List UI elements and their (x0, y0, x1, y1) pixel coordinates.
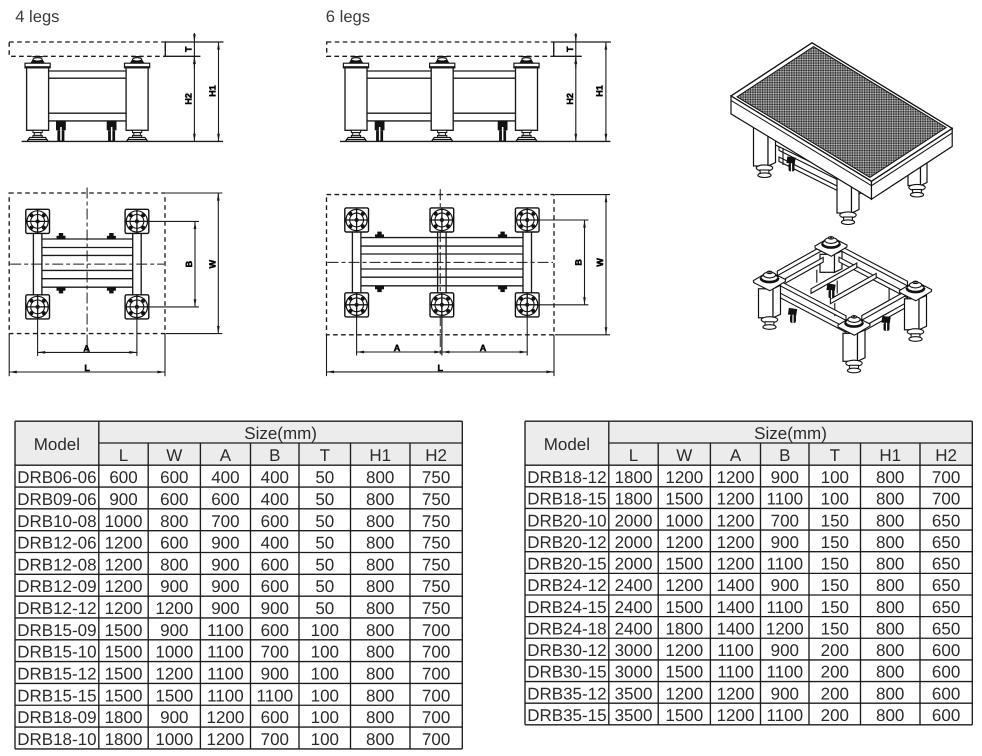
svg-text:DRB12-08: DRB12-08 (17, 555, 96, 574)
svg-text:200: 200 (821, 641, 849, 660)
svg-text:900: 900 (160, 708, 188, 727)
svg-text:L: L (629, 446, 638, 465)
svg-text:2000: 2000 (615, 533, 653, 552)
svg-text:1200: 1200 (105, 599, 143, 618)
svg-text:800: 800 (366, 708, 394, 727)
svg-text:750: 750 (422, 534, 450, 553)
svg-text:1200: 1200 (717, 468, 755, 487)
svg-text:B: B (574, 259, 584, 266)
svg-text:900: 900 (211, 555, 239, 574)
svg-text:800: 800 (876, 576, 904, 595)
svg-text:1500: 1500 (665, 555, 703, 574)
svg-text:100: 100 (821, 468, 849, 487)
svg-text:700: 700 (261, 643, 289, 662)
svg-text:750: 750 (422, 512, 450, 531)
svg-text:Size(mm): Size(mm) (244, 424, 317, 443)
svg-text:900: 900 (771, 468, 799, 487)
svg-text:900: 900 (211, 534, 239, 553)
svg-text:L: L (84, 363, 90, 373)
svg-text:DRB24-15: DRB24-15 (527, 598, 606, 617)
svg-text:50: 50 (315, 599, 334, 618)
svg-text:700: 700 (211, 512, 239, 531)
svg-text:1100: 1100 (257, 686, 294, 705)
svg-text:1400: 1400 (717, 576, 755, 595)
svg-text:1800: 1800 (615, 490, 653, 509)
svg-text:1800: 1800 (105, 708, 143, 727)
svg-text:900: 900 (261, 599, 289, 618)
svg-text:700: 700 (771, 511, 799, 530)
svg-text:1200: 1200 (665, 576, 703, 595)
svg-text:100: 100 (311, 730, 339, 749)
svg-text:900: 900 (771, 641, 799, 660)
svg-text:DRB30-15: DRB30-15 (527, 663, 606, 682)
svg-text:1100: 1100 (207, 643, 244, 662)
svg-text:600: 600 (261, 555, 289, 574)
svg-text:A: A (394, 343, 401, 353)
svg-text:T: T (565, 46, 575, 52)
svg-text:1200: 1200 (155, 665, 193, 684)
svg-text:DRB12-06: DRB12-06 (17, 534, 96, 553)
svg-text:700: 700 (422, 708, 450, 727)
svg-text:A: A (730, 446, 742, 465)
svg-text:H2: H2 (425, 446, 447, 465)
svg-text:900: 900 (109, 490, 137, 509)
svg-text:800: 800 (876, 490, 904, 509)
svg-text:2400: 2400 (615, 598, 653, 617)
svg-text:800: 800 (366, 512, 394, 531)
svg-text:900: 900 (771, 533, 799, 552)
svg-text:600: 600 (160, 534, 188, 553)
svg-text:DRB30-12: DRB30-12 (527, 641, 606, 660)
svg-text:900: 900 (771, 684, 799, 703)
svg-text:800: 800 (160, 512, 188, 531)
svg-text:900: 900 (160, 621, 188, 640)
svg-text:H2: H2 (183, 93, 193, 105)
svg-text:600: 600 (261, 708, 289, 727)
svg-text:1800: 1800 (665, 619, 703, 638)
svg-text:1200: 1200 (665, 641, 703, 660)
svg-text:200: 200 (821, 663, 849, 682)
svg-text:1200: 1200 (717, 511, 755, 530)
svg-text:900: 900 (211, 577, 239, 596)
svg-text:1100: 1100 (767, 490, 804, 509)
svg-text:A: A (480, 343, 487, 353)
svg-text:H1: H1 (879, 446, 901, 465)
svg-text:50: 50 (315, 577, 334, 596)
svg-text:Model: Model (544, 435, 590, 454)
svg-text:DRB20-10: DRB20-10 (527, 511, 606, 530)
svg-text:DRB24-18: DRB24-18 (527, 619, 606, 638)
svg-text:DRB18-10: DRB18-10 (17, 730, 96, 749)
svg-text:1200: 1200 (766, 619, 804, 638)
svg-text:1200: 1200 (105, 555, 143, 574)
svg-text:1500: 1500 (105, 621, 143, 640)
svg-text:3000: 3000 (615, 663, 653, 682)
svg-text:1200: 1200 (717, 706, 755, 725)
svg-text:1100: 1100 (207, 665, 244, 684)
svg-text:DRB20-15: DRB20-15 (527, 555, 606, 574)
svg-text:DRB18-12: DRB18-12 (527, 468, 606, 487)
svg-text:1500: 1500 (105, 665, 143, 684)
svg-text:600: 600 (932, 641, 960, 660)
svg-text:700: 700 (422, 643, 450, 662)
svg-text:100: 100 (311, 686, 339, 705)
svg-text:W: W (676, 446, 692, 465)
svg-text:600: 600 (160, 490, 188, 509)
svg-text:3000: 3000 (615, 641, 653, 660)
svg-text:DRB35-15: DRB35-15 (527, 706, 606, 725)
svg-text:1000: 1000 (155, 730, 193, 749)
svg-text:L: L (438, 363, 444, 373)
svg-text:800: 800 (160, 555, 188, 574)
svg-text:1200: 1200 (717, 684, 755, 703)
svg-text:2000: 2000 (615, 555, 653, 574)
svg-text:750: 750 (422, 490, 450, 509)
svg-text:DRB15-12: DRB15-12 (17, 665, 96, 684)
svg-text:1400: 1400 (717, 619, 755, 638)
svg-text:A: A (220, 446, 232, 465)
svg-text:1100: 1100 (207, 621, 244, 640)
svg-text:600: 600 (109, 468, 137, 487)
svg-text:600: 600 (932, 706, 960, 725)
svg-text:600: 600 (932, 663, 960, 682)
svg-text:800: 800 (876, 641, 904, 660)
svg-text:750: 750 (422, 468, 450, 487)
svg-text:800: 800 (876, 619, 904, 638)
svg-text:800: 800 (366, 490, 394, 509)
svg-text:800: 800 (366, 686, 394, 705)
svg-text:800: 800 (366, 555, 394, 574)
svg-text:150: 150 (821, 598, 849, 617)
svg-text:DRB12-09: DRB12-09 (17, 577, 96, 596)
svg-text:A: A (83, 343, 90, 353)
svg-text:650: 650 (932, 533, 960, 552)
svg-text:B: B (184, 260, 194, 267)
svg-text:1200: 1200 (105, 577, 143, 596)
svg-text:T: T (320, 446, 330, 465)
svg-text:700: 700 (932, 468, 960, 487)
svg-text:700: 700 (261, 730, 289, 749)
svg-text:800: 800 (876, 598, 904, 617)
svg-text:T: T (830, 446, 840, 465)
svg-text:1100: 1100 (767, 598, 804, 617)
svg-text:B: B (779, 446, 790, 465)
svg-text:DRB18-15: DRB18-15 (527, 490, 606, 509)
svg-text:600: 600 (261, 512, 289, 531)
svg-text:L: L (119, 446, 128, 465)
svg-text:50: 50 (315, 512, 334, 531)
svg-text:1200: 1200 (717, 555, 755, 574)
svg-text:1200: 1200 (665, 533, 703, 552)
svg-text:H1: H1 (595, 85, 605, 97)
svg-text:1800: 1800 (105, 730, 143, 749)
svg-text:H2: H2 (935, 446, 957, 465)
svg-text:DRB15-10: DRB15-10 (17, 643, 96, 662)
svg-text:800: 800 (366, 577, 394, 596)
svg-text:1200: 1200 (717, 533, 755, 552)
svg-text:650: 650 (932, 511, 960, 530)
svg-text:1500: 1500 (665, 663, 703, 682)
svg-text:H2: H2 (565, 93, 575, 105)
svg-text:1500: 1500 (665, 706, 703, 725)
svg-text:1200: 1200 (206, 708, 244, 727)
svg-text:2400: 2400 (615, 576, 653, 595)
svg-text:750: 750 (422, 577, 450, 596)
svg-text:800: 800 (366, 468, 394, 487)
svg-text:600: 600 (211, 490, 239, 509)
svg-text:600: 600 (261, 621, 289, 640)
svg-text:6 legs: 6 legs (326, 7, 370, 26)
svg-text:800: 800 (366, 621, 394, 640)
svg-text:800: 800 (876, 663, 904, 682)
svg-text:50: 50 (315, 490, 334, 509)
svg-text:100: 100 (821, 490, 849, 509)
svg-text:900: 900 (160, 577, 188, 596)
svg-text:1100: 1100 (767, 663, 804, 682)
svg-text:100: 100 (311, 665, 339, 684)
svg-text:200: 200 (821, 684, 849, 703)
svg-text:700: 700 (422, 621, 450, 640)
svg-text:DRB15-09: DRB15-09 (17, 621, 96, 640)
svg-text:800: 800 (876, 511, 904, 530)
svg-text:T: T (183, 46, 193, 52)
svg-text:600: 600 (261, 577, 289, 596)
svg-text:W: W (207, 259, 217, 268)
svg-text:800: 800 (876, 706, 904, 725)
svg-text:150: 150 (821, 533, 849, 552)
svg-text:3500: 3500 (615, 706, 653, 725)
svg-text:1200: 1200 (206, 730, 244, 749)
svg-text:750: 750 (422, 599, 450, 618)
svg-text:1200: 1200 (665, 468, 703, 487)
svg-text:600: 600 (160, 468, 188, 487)
svg-text:DRB24-12: DRB24-12 (527, 576, 606, 595)
svg-text:800: 800 (366, 665, 394, 684)
svg-text:50: 50 (315, 555, 334, 574)
svg-text:1500: 1500 (105, 643, 143, 662)
svg-text:800: 800 (876, 468, 904, 487)
svg-text:DRB18-09: DRB18-09 (17, 708, 96, 727)
svg-text:2400: 2400 (615, 619, 653, 638)
svg-text:1100: 1100 (767, 706, 804, 725)
svg-text:Model: Model (34, 435, 80, 454)
svg-text:DRB10-08: DRB10-08 (17, 512, 96, 531)
svg-text:800: 800 (876, 555, 904, 574)
svg-text:700: 700 (422, 730, 450, 749)
svg-text:800: 800 (876, 533, 904, 552)
svg-text:650: 650 (932, 555, 960, 574)
svg-text:DRB15-15: DRB15-15 (17, 686, 96, 705)
svg-text:1400: 1400 (717, 598, 755, 617)
svg-text:400: 400 (261, 468, 289, 487)
svg-text:600: 600 (932, 684, 960, 703)
svg-text:B: B (269, 446, 280, 465)
svg-text:DRB12-12: DRB12-12 (17, 599, 96, 618)
svg-text:1200: 1200 (155, 599, 193, 618)
svg-text:1100: 1100 (717, 663, 754, 682)
svg-text:1200: 1200 (717, 490, 755, 509)
svg-text:1000: 1000 (105, 512, 143, 531)
svg-text:650: 650 (932, 598, 960, 617)
svg-text:1100: 1100 (717, 641, 754, 660)
svg-text:700: 700 (932, 490, 960, 509)
svg-text:800: 800 (366, 599, 394, 618)
svg-text:800: 800 (366, 730, 394, 749)
svg-text:700: 700 (422, 686, 450, 705)
svg-text:1100: 1100 (207, 686, 244, 705)
svg-text:1500: 1500 (665, 490, 703, 509)
svg-text:200: 200 (821, 706, 849, 725)
svg-text:1000: 1000 (665, 511, 703, 530)
svg-text:W: W (166, 446, 182, 465)
svg-text:3500: 3500 (615, 684, 653, 703)
svg-text:650: 650 (932, 576, 960, 595)
svg-text:800: 800 (366, 534, 394, 553)
svg-text:1000: 1000 (155, 643, 193, 662)
svg-text:50: 50 (315, 468, 334, 487)
svg-text:800: 800 (876, 684, 904, 703)
svg-text:150: 150 (821, 619, 849, 638)
svg-text:900: 900 (211, 599, 239, 618)
svg-text:750: 750 (422, 555, 450, 574)
svg-text:Size(mm): Size(mm) (754, 424, 827, 443)
svg-text:DRB06-06: DRB06-06 (17, 468, 96, 487)
svg-text:150: 150 (821, 511, 849, 530)
svg-text:100: 100 (311, 621, 339, 640)
svg-text:H1: H1 (207, 85, 217, 97)
svg-text:H1: H1 (369, 446, 391, 465)
svg-text:1100: 1100 (767, 555, 804, 574)
svg-text:4 legs: 4 legs (15, 7, 59, 26)
svg-text:800: 800 (366, 643, 394, 662)
svg-text:1500: 1500 (155, 686, 193, 705)
svg-text:50: 50 (315, 534, 334, 553)
svg-text:1500: 1500 (105, 686, 143, 705)
svg-text:900: 900 (261, 665, 289, 684)
svg-text:1800: 1800 (615, 468, 653, 487)
svg-text:400: 400 (211, 468, 239, 487)
svg-text:W: W (595, 258, 605, 267)
svg-text:DRB20-12: DRB20-12 (527, 533, 606, 552)
svg-text:1200: 1200 (665, 684, 703, 703)
svg-text:DRB09-06: DRB09-06 (17, 490, 96, 509)
svg-text:100: 100 (311, 708, 339, 727)
svg-text:150: 150 (821, 555, 849, 574)
svg-text:400: 400 (261, 534, 289, 553)
svg-text:700: 700 (422, 665, 450, 684)
svg-text:150: 150 (821, 576, 849, 595)
svg-text:650: 650 (932, 619, 960, 638)
svg-text:400: 400 (261, 490, 289, 509)
svg-text:900: 900 (771, 576, 799, 595)
svg-text:DRB35-12: DRB35-12 (527, 684, 606, 703)
svg-text:2000: 2000 (615, 511, 653, 530)
svg-text:1500: 1500 (665, 598, 703, 617)
svg-text:1200: 1200 (105, 534, 143, 553)
svg-text:100: 100 (311, 643, 339, 662)
